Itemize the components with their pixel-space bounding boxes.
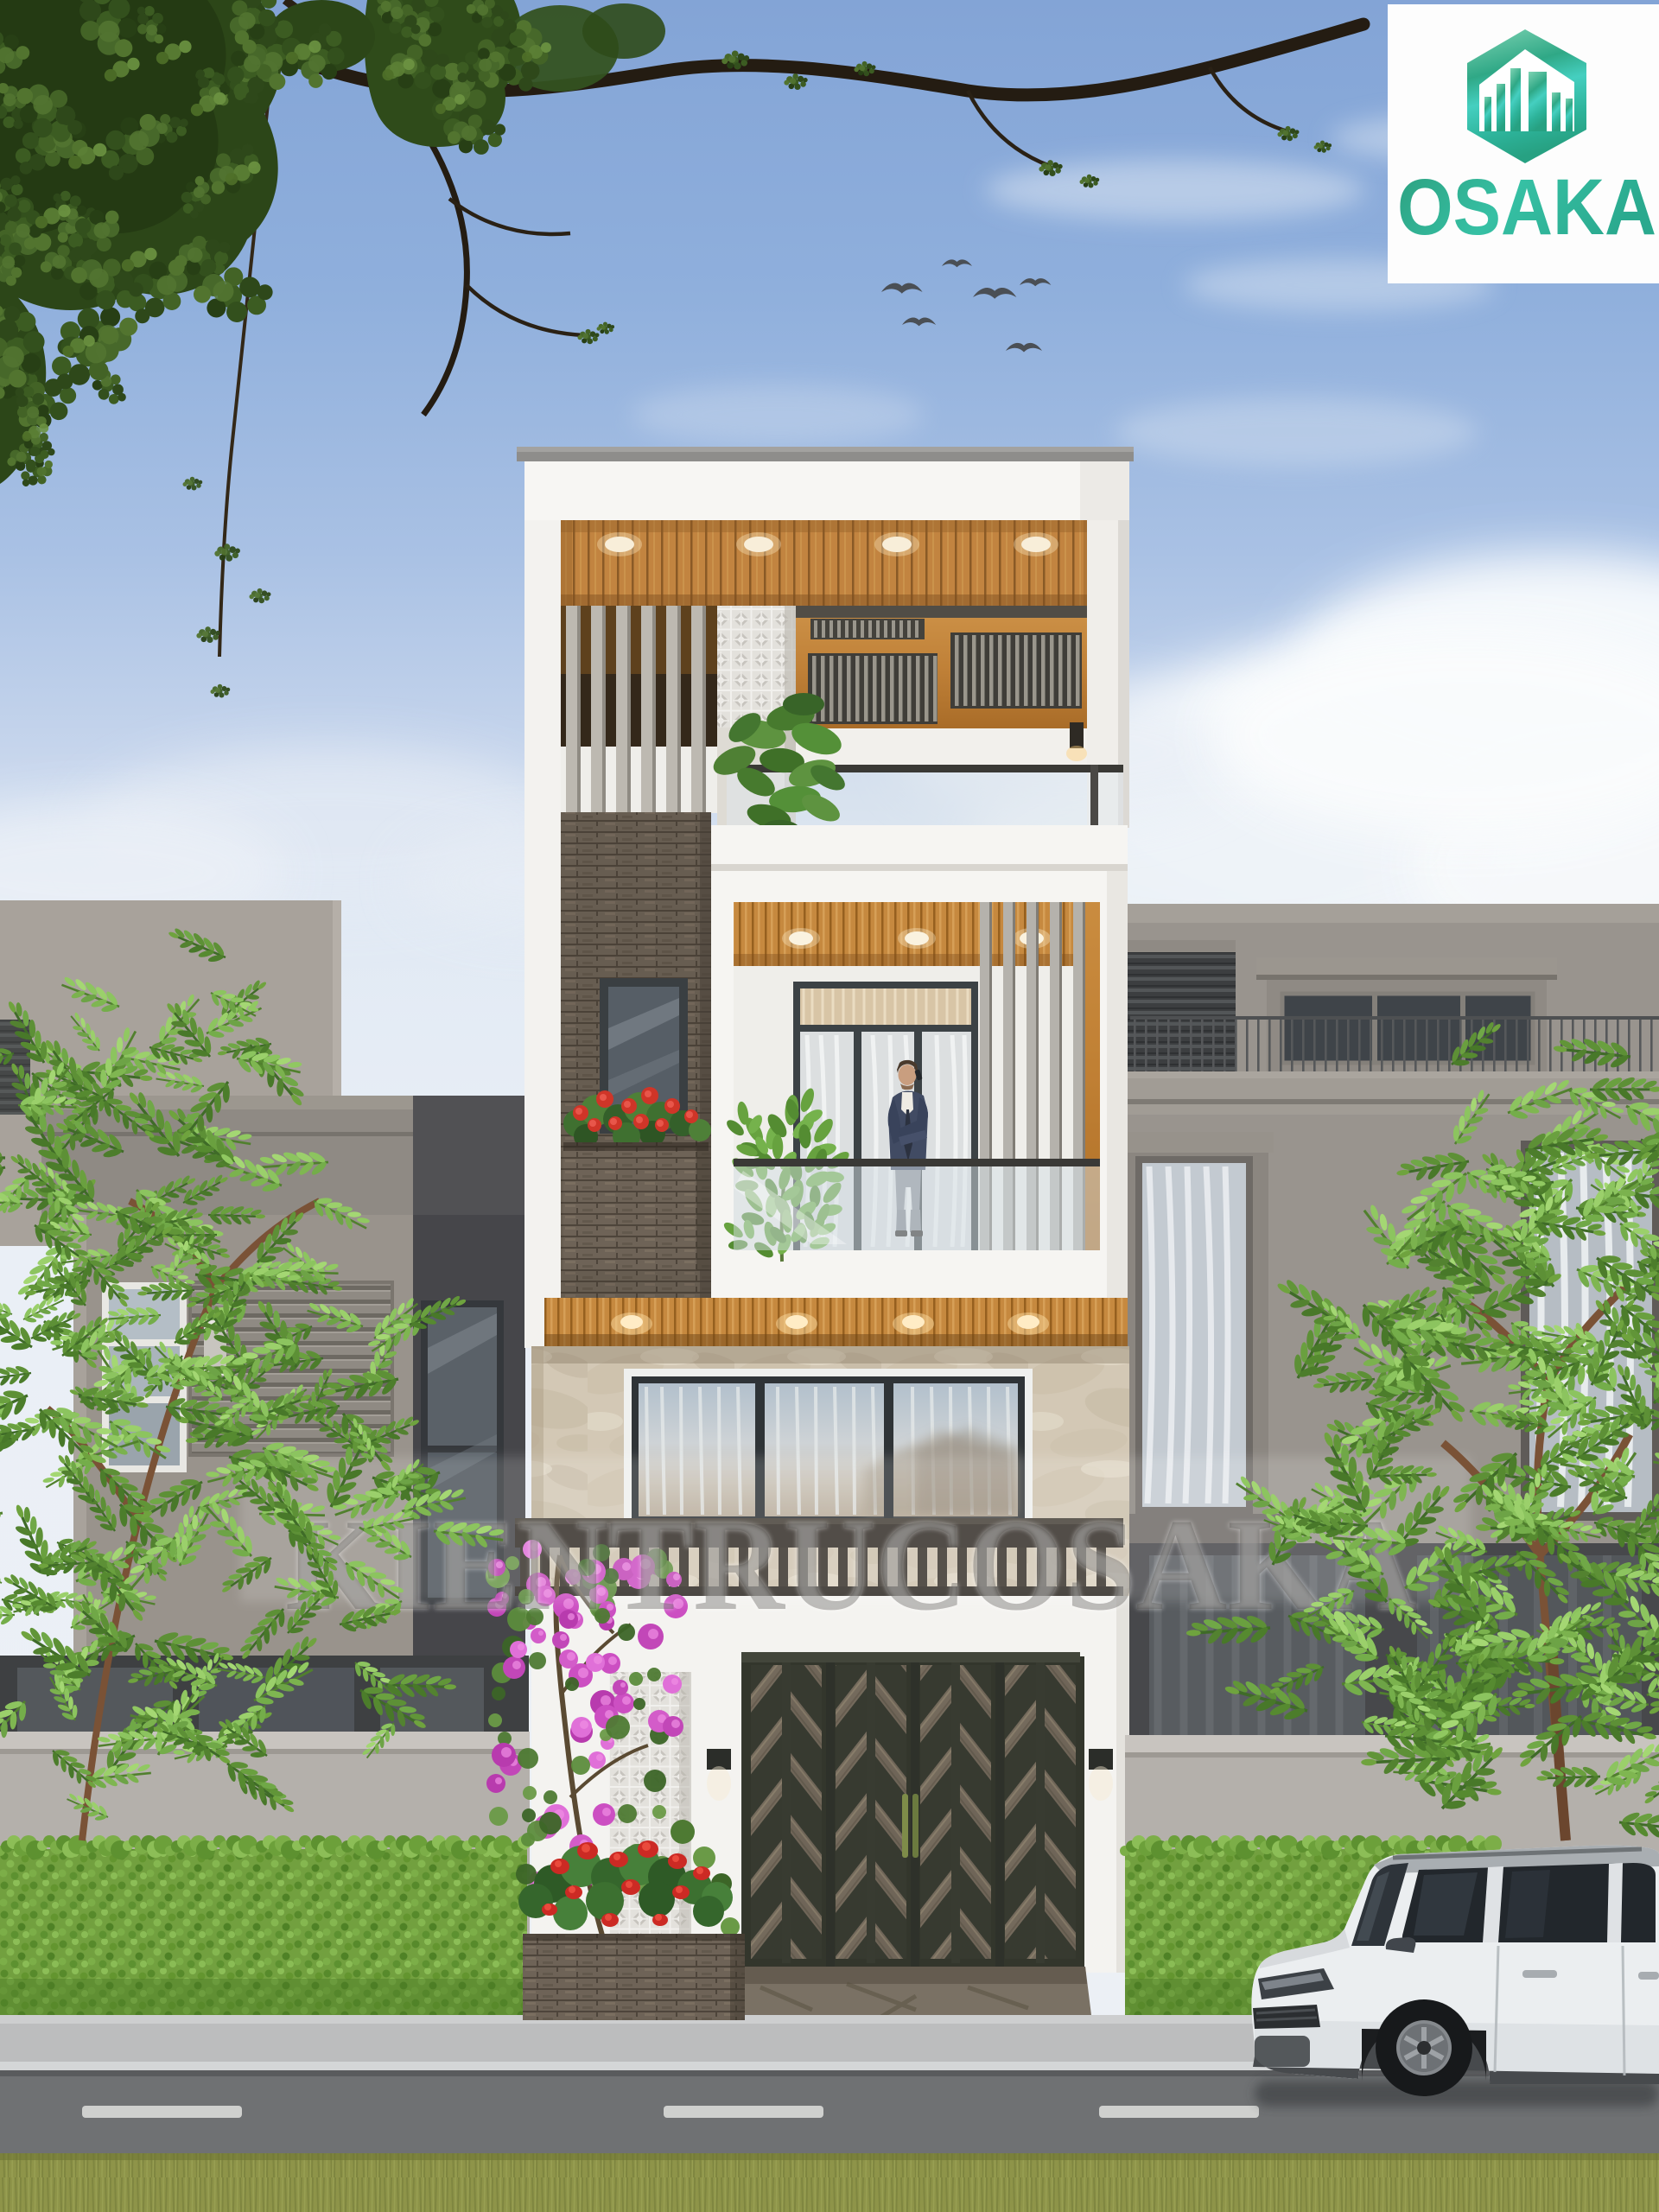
svg-text:KIENTRUCOSAKA: KIENTRUCOSAKA [285, 1492, 1417, 1637]
svg-text:OSAKA: OSAKA [1397, 163, 1656, 251]
